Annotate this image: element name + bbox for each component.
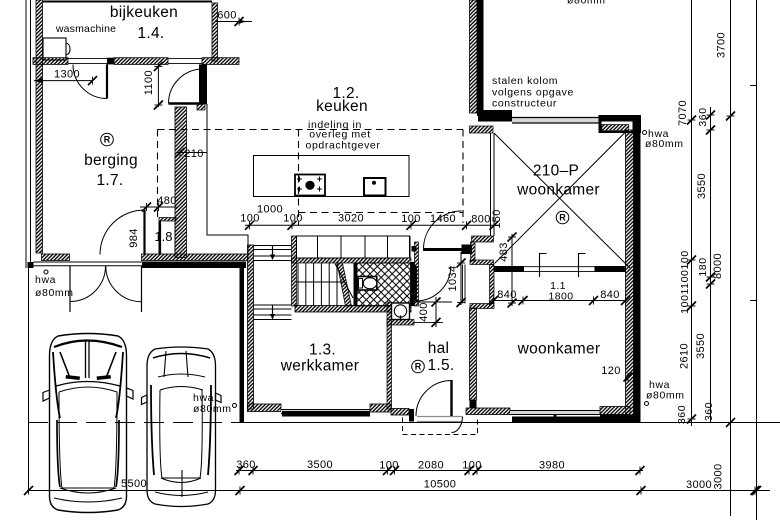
svg-text:bijkeuken: bijkeuken (110, 4, 178, 21)
svg-text:hal: hal (428, 340, 450, 357)
svg-text:constructeur: constructeur (492, 98, 557, 110)
svg-text:1.8: 1.8 (154, 229, 172, 244)
svg-text:1100: 1100 (143, 70, 155, 95)
svg-text:5500: 5500 (121, 478, 147, 490)
svg-text:ø80mm: ø80mm (567, 0, 606, 7)
svg-text:483: 483 (498, 242, 510, 262)
svg-text:3500: 3500 (307, 459, 333, 471)
svg-text:werkkamer: werkkamer (280, 358, 360, 375)
svg-text:984: 984 (128, 228, 140, 248)
svg-text:R: R (104, 135, 111, 145)
svg-text:210–P: 210–P (533, 163, 579, 180)
svg-text:210: 210 (184, 148, 204, 160)
svg-text:hwa: hwa (35, 274, 56, 286)
svg-text:berging: berging (84, 152, 138, 169)
svg-text:3980: 3980 (539, 460, 565, 472)
svg-text:1300: 1300 (54, 69, 80, 81)
svg-text:keuken: keuken (316, 98, 368, 115)
svg-text:1800: 1800 (549, 291, 574, 303)
svg-text:360: 360 (697, 107, 709, 126)
svg-text:2080: 2080 (418, 460, 444, 472)
svg-text:wasmachine: wasmachine (55, 23, 116, 35)
svg-text:100: 100 (462, 460, 482, 472)
svg-text:R: R (415, 362, 422, 372)
svg-text:8000: 8000 (712, 253, 724, 279)
svg-text:7070: 7070 (677, 100, 689, 126)
svg-text:1001100100: 1001100100 (679, 250, 691, 314)
svg-text:3550: 3550 (696, 173, 708, 199)
svg-text:100: 100 (401, 213, 421, 225)
svg-text:800: 800 (471, 214, 491, 226)
svg-text:840: 840 (600, 289, 620, 301)
svg-text:1000: 1000 (257, 204, 283, 216)
svg-text:ø80mm: ø80mm (645, 138, 684, 150)
svg-text:2610: 2610 (679, 343, 691, 369)
svg-text:1.7.: 1.7. (96, 172, 123, 189)
svg-text:360: 360 (676, 405, 688, 424)
svg-text:1034: 1034 (447, 265, 459, 291)
svg-text:1.1: 1.1 (550, 280, 566, 292)
svg-text:400: 400 (418, 302, 430, 322)
svg-text:1.4.: 1.4. (137, 25, 164, 42)
svg-text:stalen kolom: stalen kolom (492, 75, 558, 87)
svg-text:100: 100 (240, 213, 260, 225)
svg-text:ø80mm: ø80mm (35, 287, 74, 299)
svg-text:360: 360 (703, 402, 715, 421)
svg-text:3700: 3700 (716, 32, 728, 58)
svg-text:R: R (559, 213, 566, 223)
svg-text:100: 100 (379, 460, 399, 472)
svg-text:3000: 3000 (713, 463, 725, 489)
svg-text:360: 360 (236, 459, 256, 471)
svg-text:480: 480 (157, 195, 177, 207)
svg-text:840: 840 (497, 289, 517, 301)
svg-text:600: 600 (217, 10, 237, 22)
svg-text:10500: 10500 (424, 479, 457, 491)
svg-text:1460: 1460 (430, 213, 456, 225)
svg-text:150: 150 (491, 209, 503, 229)
svg-text:woonkamer: woonkamer (517, 341, 601, 358)
svg-text:1.5.: 1.5. (427, 357, 454, 374)
svg-text:3000: 3000 (686, 479, 712, 491)
svg-text:3020: 3020 (338, 213, 364, 225)
svg-text:100: 100 (283, 213, 303, 225)
svg-text:ø80mm: ø80mm (646, 390, 685, 402)
svg-text:woonkamer: woonkamer (516, 182, 600, 199)
svg-text:ø80mm: ø80mm (193, 403, 232, 415)
svg-text:120: 120 (601, 365, 621, 377)
svg-text:opdrachtgever: opdrachtgever (306, 140, 381, 152)
svg-text:1.3.: 1.3. (309, 342, 336, 359)
svg-text:3550: 3550 (695, 333, 707, 359)
svg-text:180: 180 (697, 257, 709, 276)
